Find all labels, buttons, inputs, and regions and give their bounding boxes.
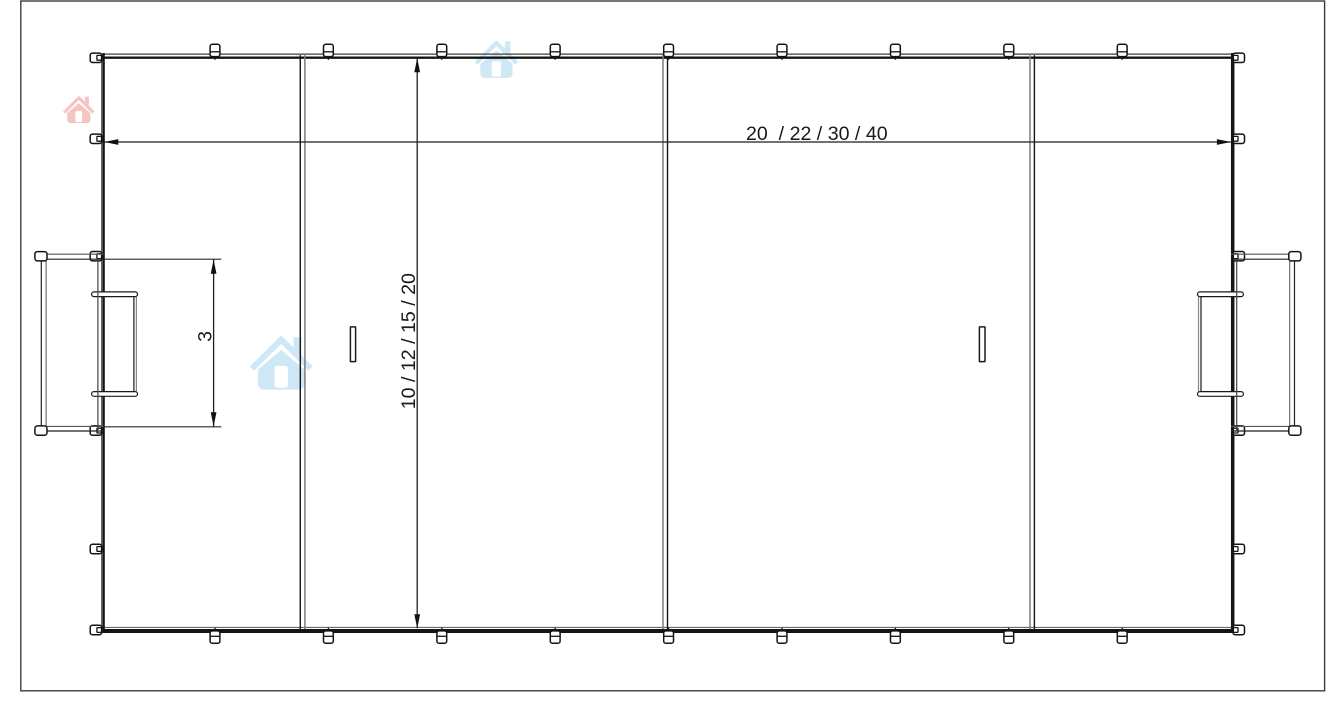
svg-text:10 / 12 / 15 / 20: 10 / 12 / 15 / 20 — [398, 273, 420, 409]
svg-text:20 / 22 / 30 / 40: 20 / 22 / 30 / 40 — [746, 123, 888, 145]
svg-text:3: 3 — [195, 331, 217, 342]
